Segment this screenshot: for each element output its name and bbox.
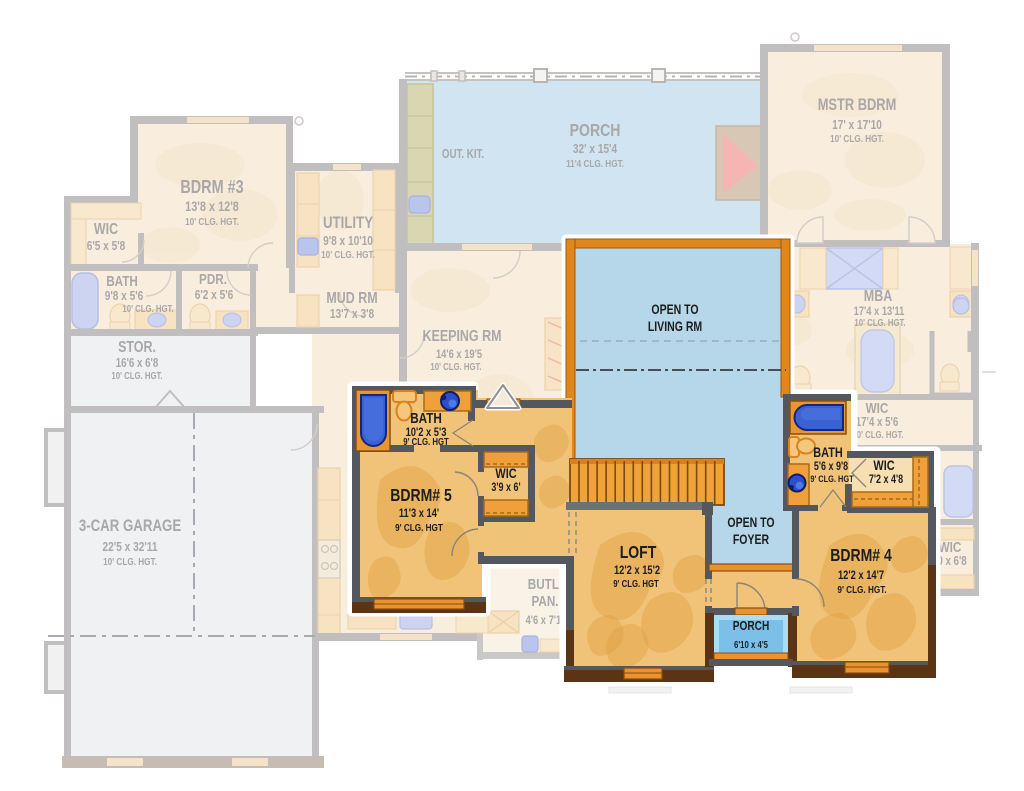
svg-text:OPEN TO: OPEN TO: [651, 302, 698, 318]
svg-text:PDR.: PDR.: [199, 271, 227, 288]
svg-text:3'9 x 6': 3'9 x 6': [491, 482, 520, 494]
svg-text:PORCH: PORCH: [570, 120, 621, 140]
svg-text:WIC: WIC: [94, 221, 118, 239]
svg-text:10' CLG. HGT.: 10' CLG. HGT.: [103, 555, 157, 567]
svg-text:7'2 x 4'8: 7'2 x 4'8: [869, 474, 903, 486]
svg-text:STOR.: STOR.: [118, 339, 156, 357]
svg-text:13'8 x 12'8: 13'8 x 12'8: [185, 199, 239, 215]
svg-text:10' CLG. HGT.: 10' CLG. HGT.: [852, 429, 903, 440]
svg-text:16'6 x 6'8: 16'6 x 6'8: [116, 357, 159, 370]
svg-text:9' CLG. HGT: 9' CLG. HGT: [810, 473, 854, 484]
svg-text:9' CLG. HGT: 9' CLG. HGT: [403, 436, 449, 447]
svg-text:FOYER: FOYER: [733, 532, 769, 548]
svg-text:BDRM #3: BDRM #3: [180, 176, 243, 197]
svg-text:22'5 x 32'11: 22'5 x 32'11: [103, 540, 158, 554]
svg-text:OUT. KIT.: OUT. KIT.: [442, 148, 484, 161]
svg-text:11'4 CLG. HGT.: 11'4 CLG. HGT.: [566, 157, 624, 169]
svg-text:MUD RM: MUD RM: [326, 290, 377, 308]
svg-text:10' CLG. HGT.: 10' CLG. HGT.: [122, 303, 173, 314]
svg-text:6'10 x 4'5: 6'10 x 4'5: [734, 639, 768, 650]
svg-text:10' CLG. HGT.: 10' CLG. HGT.: [854, 317, 905, 328]
svg-text:BATH: BATH: [410, 410, 442, 427]
svg-text:12'2 x 15'2: 12'2 x 15'2: [614, 564, 660, 577]
svg-text:17' x 17'10: 17' x 17'10: [832, 118, 882, 132]
svg-text:MBA: MBA: [864, 288, 892, 306]
svg-text:10' CLG. HGT.: 10' CLG. HGT.: [430, 361, 481, 372]
svg-text:WIC: WIC: [866, 400, 889, 417]
svg-text:10' CLG. HGT.: 10' CLG. HGT.: [185, 215, 239, 227]
svg-text:6'2 x 5'6: 6'2 x 5'6: [195, 288, 234, 302]
svg-text:UTILITY: UTILITY: [323, 214, 373, 233]
svg-text:WIC: WIC: [495, 466, 516, 482]
svg-text:BDRM# 4: BDRM# 4: [830, 545, 892, 565]
svg-text:BDRM# 5: BDRM# 5: [390, 485, 452, 505]
svg-text:32' x 15'4: 32' x 15'4: [573, 142, 618, 156]
svg-text:PORCH: PORCH: [733, 619, 770, 633]
svg-text:10' CLG. HGT.: 10' CLG. HGT.: [111, 370, 162, 381]
svg-text:9'8 x 10'10: 9'8 x 10'10: [323, 234, 373, 248]
svg-text:13'7 x 3'8: 13'7 x 3'8: [330, 307, 375, 321]
svg-text:12'2 x 14'7: 12'2 x 14'7: [838, 569, 884, 582]
svg-text:PAN.: PAN.: [531, 593, 558, 610]
svg-text:14'6 x 19'5: 14'6 x 19'5: [436, 348, 482, 361]
svg-text:6'5 x 5'8: 6'5 x 5'8: [87, 239, 126, 253]
svg-text:10' CLG. HGT.: 10' CLG. HGT.: [321, 248, 375, 260]
svg-text:WIC: WIC: [939, 539, 962, 556]
svg-text:9'8 x 5'6: 9'8 x 5'6: [105, 289, 144, 303]
svg-text:WIC: WIC: [873, 458, 894, 474]
svg-text:KEEPING RM: KEEPING RM: [423, 328, 502, 346]
svg-text:MSTR BDRM: MSTR BDRM: [818, 97, 897, 115]
svg-text:9' CLG. HGT.: 9' CLG. HGT.: [837, 583, 886, 595]
svg-text:11'3 x 14': 11'3 x 14': [399, 507, 439, 520]
svg-text:OPEN TO: OPEN TO: [727, 515, 774, 531]
svg-text:BATH: BATH: [106, 273, 138, 290]
svg-text:BUTL.: BUTL.: [528, 576, 562, 593]
svg-text:9' CLG. HGT: 9' CLG. HGT: [395, 521, 443, 533]
svg-text:17'4 x 5'6: 17'4 x 5'6: [856, 416, 899, 429]
svg-text:9' CLG. HGT: 9' CLG. HGT: [613, 578, 659, 589]
svg-text:0 x 6'8: 0 x 6'8: [937, 555, 966, 568]
svg-text:3-CAR GARAGE: 3-CAR GARAGE: [79, 517, 181, 536]
svg-text:BATH: BATH: [813, 445, 843, 461]
svg-text:LOFT: LOFT: [620, 542, 657, 562]
svg-text:5'6 x 9'8: 5'6 x 9'8: [814, 461, 848, 473]
svg-text:LIVING RM: LIVING RM: [648, 319, 702, 335]
svg-text:10' CLG. HGT.: 10' CLG. HGT.: [830, 132, 884, 144]
